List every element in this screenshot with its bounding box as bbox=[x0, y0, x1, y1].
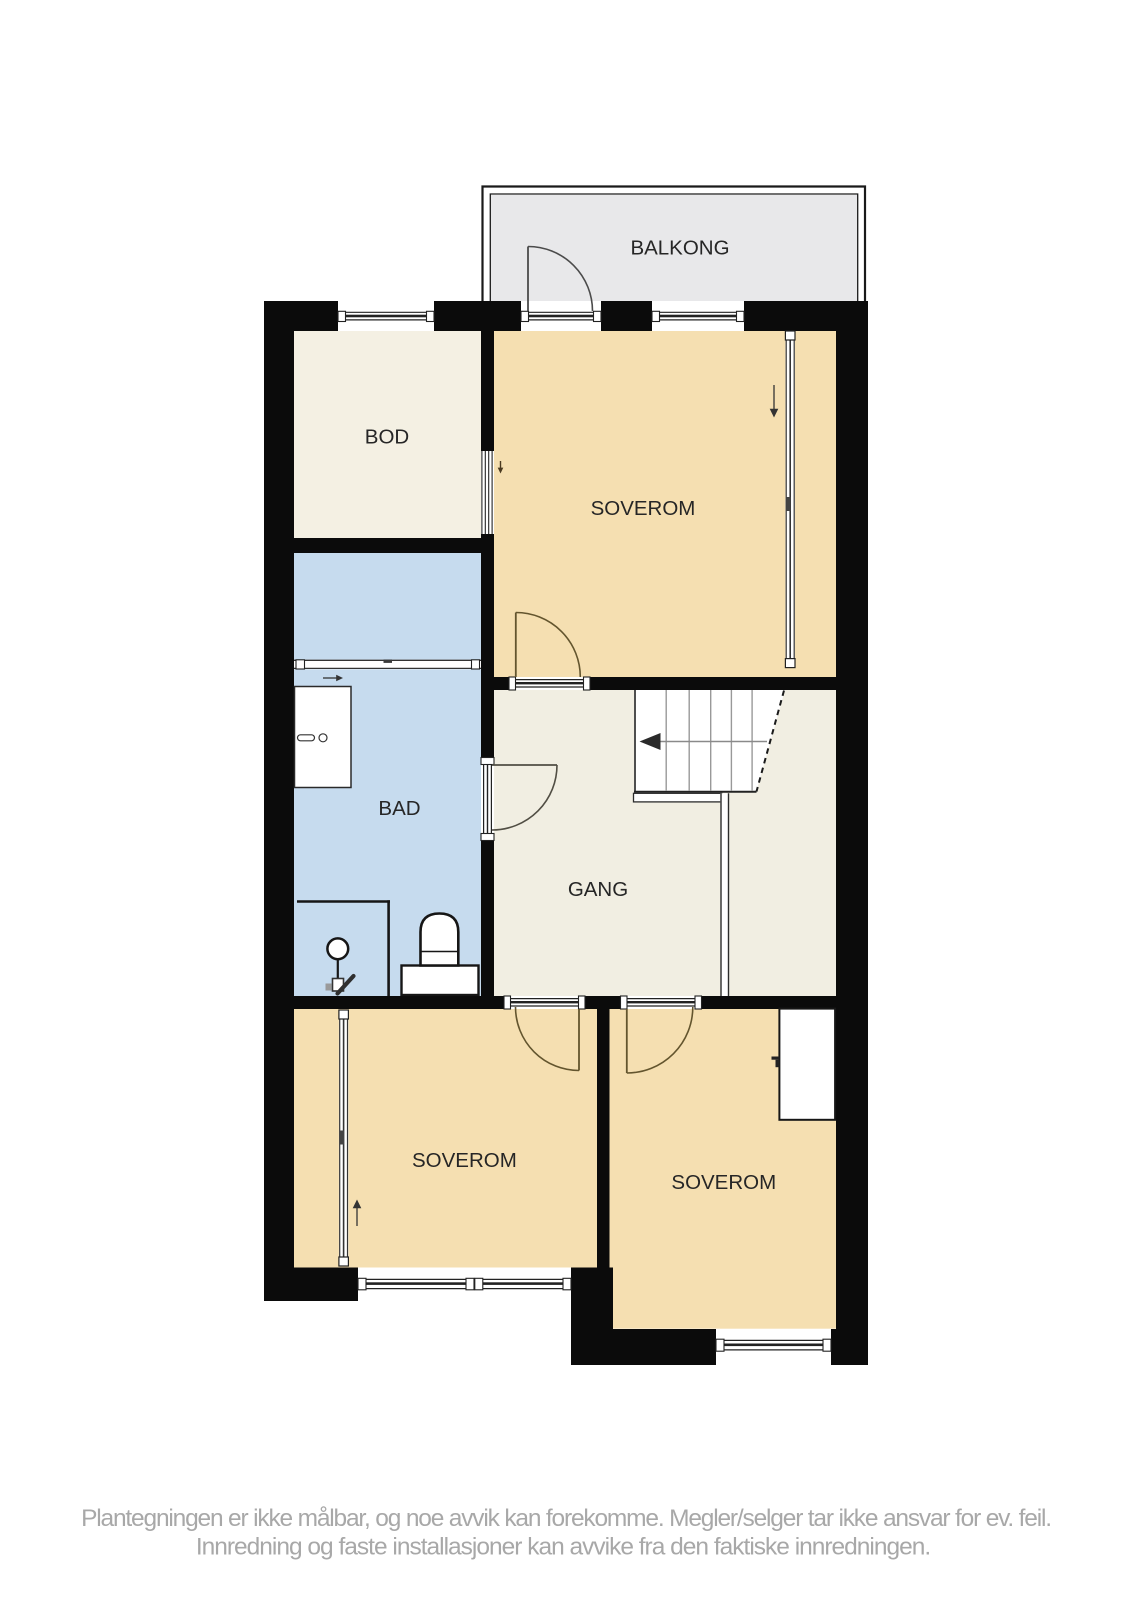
svg-text:BAD: BAD bbox=[378, 797, 420, 820]
svg-text:Plantegningen er ikke målbar,: Plantegningen er ikke målbar, og noe avv… bbox=[81, 1505, 1051, 1532]
svg-text:SOVEROM: SOVEROM bbox=[412, 1149, 517, 1172]
svg-text:SOVEROM: SOVEROM bbox=[591, 497, 696, 520]
svg-text:BALKONG: BALKONG bbox=[630, 237, 729, 260]
svg-text:SOVEROM: SOVEROM bbox=[671, 1171, 776, 1194]
svg-text:Innredning og faste installasj: Innredning og faste installasjoner kan a… bbox=[196, 1534, 930, 1561]
svg-text:BOD: BOD bbox=[365, 426, 409, 449]
svg-text:GANG: GANG bbox=[568, 878, 628, 901]
